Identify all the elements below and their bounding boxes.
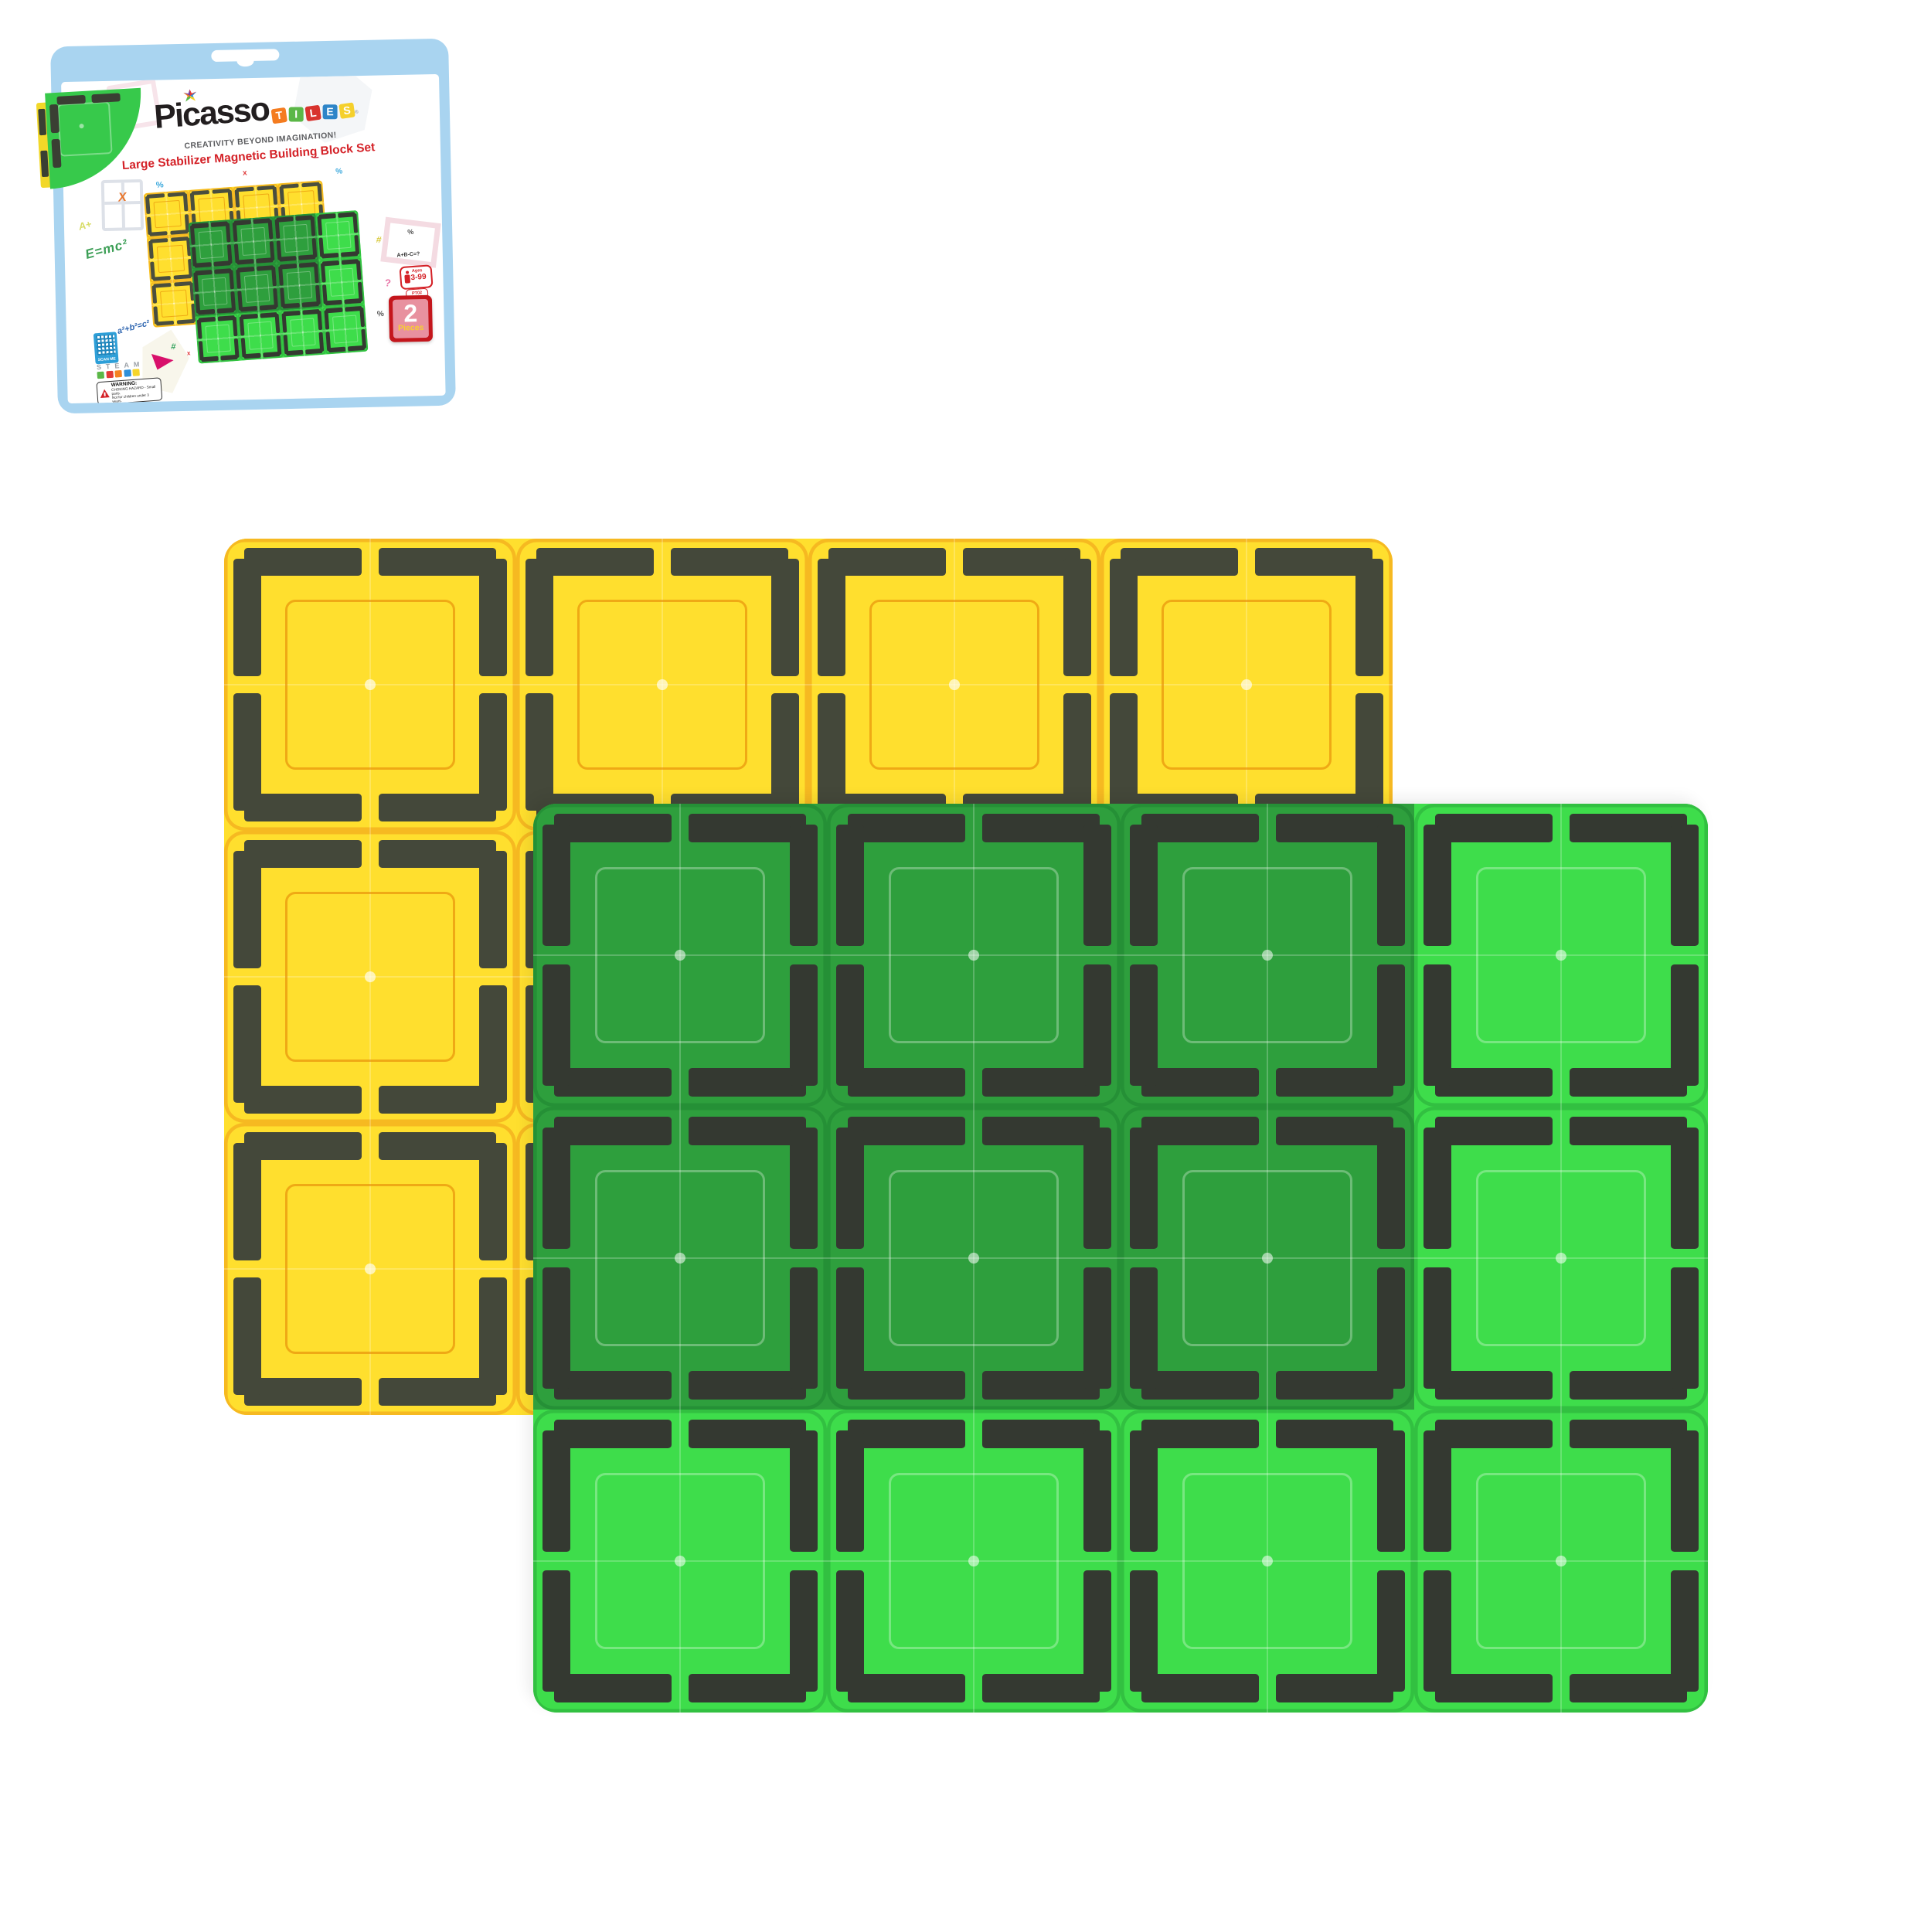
tile-center-dot bbox=[675, 950, 685, 961]
tile-cell bbox=[1121, 804, 1414, 1107]
magnet-bar bbox=[828, 548, 945, 576]
tile-center-dot bbox=[1262, 1253, 1273, 1264]
magnet-bar bbox=[277, 335, 282, 355]
magnet-bar bbox=[234, 244, 240, 264]
magnet-bar bbox=[318, 238, 324, 257]
magnet-bar bbox=[229, 270, 234, 289]
tile-cell bbox=[1414, 1107, 1708, 1410]
magnet-bar bbox=[275, 314, 281, 333]
magnet-bar bbox=[1435, 1068, 1553, 1097]
magnet-bar bbox=[232, 223, 237, 242]
choking-warning-label: WARNING: CHOKING HAZARD - Small parts. N… bbox=[96, 377, 162, 403]
magnet-bar bbox=[1083, 1128, 1111, 1249]
magnet-bar bbox=[543, 1267, 570, 1389]
magnet-bar bbox=[1377, 1267, 1405, 1389]
magnet-bar bbox=[244, 1086, 361, 1114]
magnet-bar bbox=[1671, 964, 1699, 1086]
tile-cell bbox=[533, 1410, 827, 1713]
magnet-bar bbox=[236, 270, 241, 289]
magnet-bar bbox=[281, 183, 299, 189]
tile-center-dot bbox=[80, 124, 84, 128]
steam-letter: M bbox=[134, 360, 140, 369]
magnet-bar bbox=[836, 1570, 864, 1692]
magnet-bar bbox=[379, 548, 495, 576]
tiles-letter-tile: S bbox=[338, 102, 355, 119]
magnet-bar bbox=[148, 241, 154, 260]
magnet-bar bbox=[1083, 1570, 1111, 1692]
tile-cell bbox=[192, 267, 237, 317]
magnet-bar bbox=[51, 138, 61, 168]
magnet-bar bbox=[1130, 1570, 1158, 1692]
tile-center-dot bbox=[1262, 1556, 1273, 1566]
steam-block bbox=[114, 370, 122, 378]
magnet-bar bbox=[1255, 548, 1372, 576]
magnet-bar bbox=[236, 259, 253, 264]
tiles-letter-tile: I bbox=[288, 107, 303, 122]
magnet-bar bbox=[554, 1674, 672, 1702]
tiles-letter-tile: E bbox=[322, 104, 337, 119]
magnet-bar bbox=[227, 190, 233, 209]
brand-logo: Picasso T I L E S ® bbox=[153, 84, 359, 137]
magnet-bar bbox=[982, 1674, 1100, 1702]
magnet-bar bbox=[1570, 1674, 1687, 1702]
tile-center-dot bbox=[968, 1556, 979, 1566]
magnet-bar bbox=[233, 1143, 261, 1260]
magnet-bar bbox=[1276, 1420, 1393, 1448]
magnet-bar bbox=[244, 794, 361, 821]
tile-cell bbox=[319, 257, 365, 308]
magnet-bar bbox=[1141, 1117, 1259, 1145]
magnet-bar bbox=[1570, 814, 1687, 842]
tile-cell bbox=[273, 213, 318, 264]
magnet-bar bbox=[379, 794, 495, 821]
magnet-bar bbox=[356, 260, 362, 280]
tile-cell bbox=[224, 1123, 516, 1415]
tile-cell bbox=[230, 216, 276, 267]
magnet-bar bbox=[1377, 964, 1405, 1086]
magnet-bar bbox=[536, 548, 653, 576]
magnet-bar bbox=[272, 187, 277, 206]
steam-letter: E bbox=[114, 362, 120, 369]
hash-doodle: # bbox=[171, 342, 176, 352]
magnet-bar bbox=[836, 1128, 864, 1249]
magnet-bar bbox=[1083, 964, 1111, 1086]
magnet-bar bbox=[268, 219, 274, 239]
magnet-bar bbox=[226, 223, 231, 242]
quarter-circle-tile bbox=[40, 88, 146, 194]
magnet-bar bbox=[479, 693, 507, 810]
magnet-bar bbox=[91, 93, 121, 103]
product-box: % X A+ E=mc² ? x − % % # A+B-C=? ? % a²+… bbox=[50, 39, 456, 414]
steam-block bbox=[132, 369, 140, 376]
magnet-bar bbox=[153, 283, 172, 288]
age-badge: Ages 3-99 bbox=[400, 264, 434, 290]
steam-letter: A bbox=[124, 361, 129, 369]
magnet-bar bbox=[1377, 1430, 1405, 1552]
magnet-bar bbox=[354, 235, 359, 254]
product-photo: % X A+ E=mc² ? x − % % # A+B-C=? ? % a²+… bbox=[0, 0, 1932, 1932]
magnet-bar bbox=[314, 264, 319, 283]
pink-triangle-doodle bbox=[151, 350, 175, 370]
magnet-bar bbox=[790, 1128, 818, 1249]
magnet-bar bbox=[234, 338, 240, 358]
steam-badge: S T E A M bbox=[97, 360, 141, 379]
magnet-bar bbox=[1141, 1674, 1259, 1702]
piece-count-label: Pieces bbox=[393, 323, 429, 333]
magnet-bar bbox=[1063, 559, 1091, 675]
magnet-bar bbox=[233, 559, 261, 675]
magnet-bar bbox=[194, 262, 211, 267]
magnet-bar bbox=[1435, 814, 1553, 842]
piece-count-badge: 2 Pieces bbox=[389, 295, 433, 342]
magnet-bar bbox=[689, 814, 806, 842]
magnet-bar bbox=[689, 1068, 806, 1097]
magnet-bar bbox=[150, 261, 155, 280]
magnet-bar bbox=[236, 187, 255, 192]
magnet-bar bbox=[1435, 1674, 1553, 1702]
steam-letter: T bbox=[106, 362, 111, 370]
tile-cell bbox=[147, 235, 195, 283]
magnet-bar bbox=[1377, 825, 1405, 946]
magnet-bar bbox=[270, 241, 275, 260]
magnet-bar bbox=[1671, 825, 1699, 946]
magnet-bar bbox=[1130, 825, 1158, 946]
magnet-bar bbox=[848, 814, 965, 842]
magnet-bar bbox=[279, 186, 284, 205]
magnet-bar bbox=[276, 241, 281, 260]
magnet-bar bbox=[310, 216, 315, 236]
magnet-bar bbox=[689, 1117, 806, 1145]
magnet-bar bbox=[1110, 559, 1138, 675]
person-icon bbox=[404, 270, 410, 284]
magnet-bar bbox=[848, 1371, 965, 1400]
magnet-bar bbox=[1671, 1267, 1699, 1389]
magnet-bar bbox=[321, 264, 326, 283]
magnet-bar bbox=[1435, 1420, 1553, 1448]
magnet-bar bbox=[526, 693, 553, 810]
magnet-bar bbox=[689, 1674, 806, 1702]
magnet-bar bbox=[233, 317, 238, 336]
magnet-bar bbox=[848, 1117, 965, 1145]
tile-cell bbox=[1414, 1410, 1708, 1713]
magnet-bar bbox=[1276, 1117, 1393, 1145]
magnet-bar bbox=[1130, 1128, 1158, 1249]
magnet-bar bbox=[359, 308, 365, 327]
tile-center-dot bbox=[968, 1253, 979, 1264]
magnet-bar bbox=[233, 985, 261, 1102]
tile-center-dot bbox=[675, 1253, 685, 1264]
magnet-bar bbox=[283, 335, 288, 354]
magnet-bar bbox=[836, 825, 864, 946]
tile-center-dot bbox=[365, 971, 376, 982]
magnet-bar bbox=[321, 253, 338, 258]
magnet-bar bbox=[278, 267, 284, 286]
magnet-bar bbox=[1423, 1570, 1451, 1692]
magnet-bar bbox=[147, 216, 152, 235]
tile-cell bbox=[280, 308, 325, 358]
magnet-bar bbox=[156, 320, 175, 325]
tiles-letter-tile: T bbox=[270, 107, 287, 124]
magnet-bar bbox=[227, 244, 233, 264]
picasso-wordmark: Picasso bbox=[153, 90, 270, 137]
tile-cell bbox=[1414, 804, 1708, 1107]
magnet-bar bbox=[1141, 1420, 1259, 1448]
piece-count-inner: 2 Pieces bbox=[393, 299, 429, 338]
magnet-bar bbox=[1130, 1267, 1158, 1389]
magnet-bar bbox=[543, 1430, 570, 1552]
magnet-bar bbox=[554, 1068, 672, 1097]
magnet-bar bbox=[1671, 1430, 1699, 1552]
x-doodle: X bbox=[117, 191, 127, 206]
magnet-bar bbox=[243, 353, 260, 359]
emc2-doodle: E=mc² bbox=[83, 236, 130, 263]
magnet-bar bbox=[1423, 1128, 1451, 1249]
magnet-bar bbox=[1355, 693, 1383, 810]
magnet-bar bbox=[689, 1371, 806, 1400]
magnet-bar bbox=[790, 1267, 818, 1389]
magnet-bar bbox=[1110, 693, 1138, 810]
magnet-bar bbox=[192, 247, 197, 267]
magnet-bar bbox=[280, 288, 285, 308]
tile-cell bbox=[150, 280, 198, 328]
warning-triangle-icon bbox=[100, 389, 110, 398]
magnet-bar bbox=[190, 226, 196, 245]
magnet-bar bbox=[1423, 1430, 1451, 1552]
percent-doodle: % bbox=[377, 310, 385, 319]
magnet-bar bbox=[1570, 1371, 1687, 1400]
magnet-bar bbox=[379, 840, 495, 868]
magnet-bar bbox=[315, 285, 321, 304]
registered-mark: ® bbox=[355, 111, 359, 115]
magnet-bar bbox=[1276, 1068, 1393, 1097]
tile-cell bbox=[224, 539, 516, 831]
magnet-bar bbox=[237, 291, 243, 311]
magnet-bar bbox=[317, 216, 322, 236]
magnet-bar bbox=[233, 851, 261, 968]
tile-cell bbox=[322, 304, 368, 355]
hash-doodle: # bbox=[376, 234, 383, 246]
magnet-bar bbox=[818, 559, 845, 675]
magnet-bar bbox=[526, 559, 553, 675]
box-art-green-plate bbox=[189, 210, 369, 364]
magnet-bar bbox=[244, 840, 361, 868]
magnet-bar bbox=[790, 1430, 818, 1552]
tile-cell bbox=[144, 190, 192, 238]
magnet-bar bbox=[193, 273, 199, 292]
magnet-bar bbox=[282, 303, 299, 308]
magnet-bar bbox=[274, 219, 280, 239]
magnet-bar bbox=[328, 347, 345, 352]
magnet-bar bbox=[479, 559, 507, 675]
magnet-bar bbox=[543, 825, 570, 946]
magnet-bar bbox=[324, 310, 329, 329]
green-quarter-tile bbox=[45, 88, 146, 189]
magnet-bar bbox=[1570, 1420, 1687, 1448]
magnet-bar bbox=[233, 1277, 261, 1394]
magnet-bar bbox=[182, 193, 188, 212]
magnet-bar bbox=[1671, 1128, 1699, 1249]
magnet-bar bbox=[379, 1132, 495, 1160]
magnet-bar bbox=[543, 1570, 570, 1692]
magnet-bar bbox=[554, 1117, 672, 1145]
magnet-bar bbox=[790, 1570, 818, 1692]
magnet-bar bbox=[322, 285, 328, 304]
tile-center-dot bbox=[1556, 1556, 1566, 1566]
tile-cell bbox=[827, 1410, 1121, 1713]
magnet-bar bbox=[40, 151, 49, 177]
tile-cell bbox=[237, 311, 283, 361]
tile-center-dot bbox=[675, 1556, 685, 1566]
magnet-bar bbox=[1570, 1068, 1687, 1097]
magnet-bar bbox=[836, 964, 864, 1086]
magnet-bar bbox=[234, 189, 240, 208]
tile-center-dot bbox=[1556, 950, 1566, 961]
magnet-bar bbox=[325, 300, 342, 305]
tile-center-dot bbox=[657, 679, 668, 690]
magnet-bar bbox=[790, 825, 818, 946]
tile-cell bbox=[277, 260, 322, 311]
tile-center-dot bbox=[365, 679, 376, 690]
tile-center-dot bbox=[1556, 1253, 1566, 1264]
tile-cell bbox=[196, 314, 241, 364]
magnet-bar bbox=[1435, 1371, 1553, 1400]
magnet-bar bbox=[153, 276, 172, 281]
age-range: 3-99 bbox=[410, 273, 427, 282]
magnet-bar bbox=[49, 104, 60, 134]
magnet-bar bbox=[479, 851, 507, 968]
magnet-bar bbox=[1355, 559, 1383, 675]
magnet-bar bbox=[379, 1086, 495, 1114]
x-doodle: x bbox=[243, 168, 247, 177]
magnet-bar bbox=[1276, 814, 1393, 842]
magnet-bar bbox=[1141, 1371, 1259, 1400]
magnet-bar bbox=[1083, 825, 1111, 946]
magnet-bar bbox=[195, 294, 200, 314]
pythagoras-doodle: a²+b²=c² bbox=[117, 318, 151, 336]
magnet-bar bbox=[1141, 1068, 1259, 1097]
tile-cell bbox=[1121, 1107, 1414, 1410]
magnet-bar bbox=[197, 320, 202, 339]
magnet-bar bbox=[273, 288, 278, 308]
magnet-bar bbox=[543, 1128, 570, 1249]
tile-cell bbox=[533, 1107, 827, 1410]
percent-doodle: % bbox=[335, 167, 343, 176]
green-baseplate bbox=[533, 804, 1708, 1713]
tile-cell bbox=[827, 1107, 1121, 1410]
magnet-bar bbox=[38, 109, 46, 135]
magnet-bar bbox=[312, 238, 318, 257]
magnet-bar bbox=[240, 306, 257, 311]
magnet-bar bbox=[836, 1267, 864, 1389]
magnet-bar bbox=[1570, 1117, 1687, 1145]
magnet-bar bbox=[279, 256, 296, 261]
tile-center-dot bbox=[365, 1264, 376, 1274]
magnet-bar bbox=[543, 964, 570, 1086]
tile-cell bbox=[827, 804, 1121, 1107]
tiles-letter-tile: L bbox=[304, 105, 321, 122]
magnet-bar bbox=[1423, 964, 1451, 1086]
magnet-bar bbox=[1063, 693, 1091, 810]
magnet-bar bbox=[325, 332, 331, 351]
tile-cell bbox=[516, 539, 808, 831]
percent-doodle: % bbox=[156, 180, 165, 190]
magnet-bar bbox=[240, 338, 246, 357]
tile-cell bbox=[315, 210, 361, 260]
magnet-bar bbox=[1121, 548, 1237, 576]
magnet-bar bbox=[192, 190, 210, 196]
magnet-bar bbox=[317, 183, 322, 202]
magnet-bar bbox=[554, 1371, 672, 1400]
magnet-bar bbox=[352, 213, 358, 233]
magnet-bar bbox=[358, 282, 363, 301]
magnet-bar bbox=[230, 291, 236, 311]
magnet-bar bbox=[671, 548, 787, 576]
magnet-bar bbox=[190, 193, 196, 212]
tile-cell bbox=[224, 831, 516, 1123]
magnet-bar bbox=[199, 342, 204, 361]
magnet-bar bbox=[147, 193, 165, 199]
magnet-bar bbox=[286, 350, 303, 355]
magnet-bar bbox=[153, 306, 158, 325]
magnet-bar bbox=[244, 1378, 361, 1406]
magnet-bar bbox=[771, 693, 799, 810]
magnet-bar bbox=[479, 1277, 507, 1394]
magnet-bar bbox=[982, 814, 1100, 842]
tile-cell bbox=[533, 804, 827, 1107]
tile-center-dot bbox=[968, 950, 979, 961]
steam-block bbox=[106, 371, 114, 379]
a-plus-doodle: A+ bbox=[77, 218, 93, 233]
magnet-bar bbox=[56, 95, 86, 105]
magnet-bar bbox=[982, 1420, 1100, 1448]
magnet-bar bbox=[479, 985, 507, 1102]
magnet-bar bbox=[963, 548, 1080, 576]
magnet-bar bbox=[1141, 814, 1259, 842]
equation-doodle: A+B-C=? bbox=[396, 251, 420, 258]
magnet-bar bbox=[318, 332, 324, 352]
magnet-bar bbox=[1276, 1674, 1393, 1702]
steam-block bbox=[124, 369, 131, 377]
magnet-bar bbox=[201, 356, 218, 362]
magnet-bar bbox=[233, 693, 261, 810]
magnet-bar bbox=[244, 548, 361, 576]
magnet-bar bbox=[818, 693, 845, 810]
tile-center-dot bbox=[1241, 679, 1252, 690]
tile-center-dot bbox=[949, 679, 960, 690]
steam-letter: S bbox=[97, 363, 102, 371]
magnet-bar bbox=[1130, 1430, 1158, 1552]
percent-doodle: % bbox=[407, 228, 414, 236]
magnet-bar bbox=[151, 285, 157, 304]
magnet-bar bbox=[848, 1674, 965, 1702]
magnet-bar bbox=[479, 1143, 507, 1260]
tile-cell bbox=[234, 264, 280, 314]
magnet-bar bbox=[361, 329, 366, 349]
magnet-bar bbox=[198, 309, 215, 315]
steam-block bbox=[97, 372, 104, 379]
magnet-bar bbox=[379, 1378, 495, 1406]
magnet-bar bbox=[145, 196, 151, 215]
magnet-bar bbox=[281, 313, 287, 332]
tile-cell bbox=[1121, 1410, 1414, 1713]
magnet-bar bbox=[1083, 1267, 1111, 1389]
magnet-bar bbox=[790, 964, 818, 1086]
magnet-bar bbox=[239, 316, 244, 335]
x-doodle: x bbox=[187, 349, 191, 356]
hanger-slot bbox=[211, 49, 279, 62]
magnet-bar bbox=[244, 1132, 361, 1160]
magnet-bar bbox=[1130, 964, 1158, 1086]
